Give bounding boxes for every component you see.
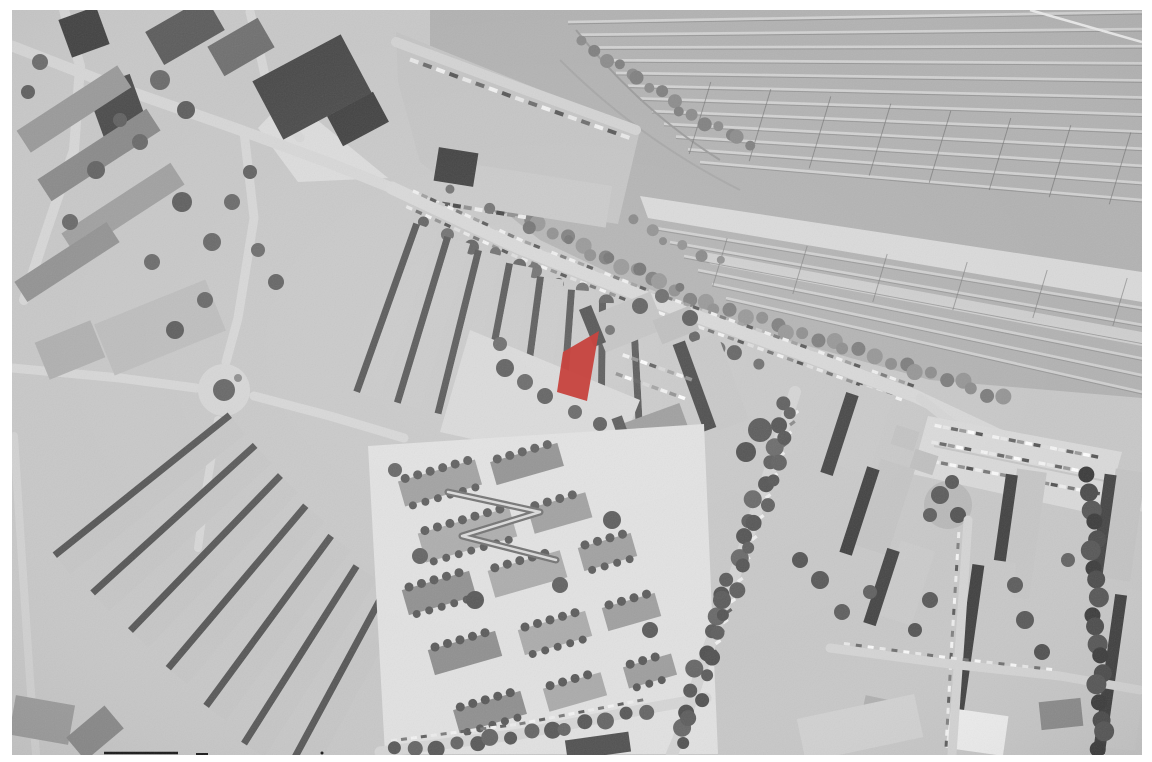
orthophoto: [9, 0, 1152, 762]
aerial-photo-figure: [0, 0, 1152, 762]
aerial-site-map: [0, 0, 1152, 762]
